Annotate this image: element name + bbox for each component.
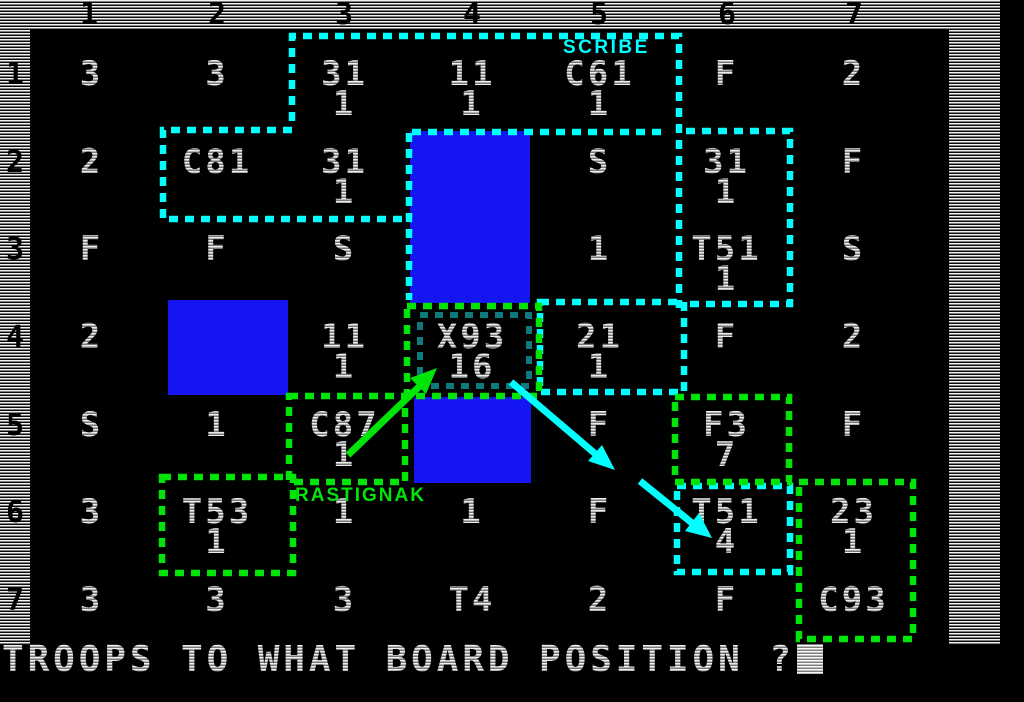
cyan-box-c6r2r3: [686, 131, 790, 304]
cyan-box-21-r4c5: [540, 302, 684, 392]
cyan-zone-c81-outline: [163, 130, 412, 219]
game-screen: TROOPS TO WHAT BOARD POSITION ? SCRIBE R…: [0, 0, 1024, 702]
teal-box-x93-inner: [420, 315, 529, 386]
blue-square-c2r4: [168, 300, 288, 395]
blue-square-c4r5: [414, 397, 531, 483]
green-box-c87-r5c3: [289, 396, 405, 482]
scribe-label: SCRIBE: [563, 37, 650, 59]
green-box-23-c93-c7: [799, 482, 913, 639]
cyan-arrow-2-shaft: [640, 481, 697, 527]
rastignak-label: RASTIGNAK: [295, 485, 426, 507]
green-box-t53-r6c2: [162, 477, 293, 573]
annotation-layer: [0, 0, 1024, 702]
green-box-f3-r5c6: [675, 397, 789, 482]
blue-square-c4r2r3: [410, 131, 530, 303]
